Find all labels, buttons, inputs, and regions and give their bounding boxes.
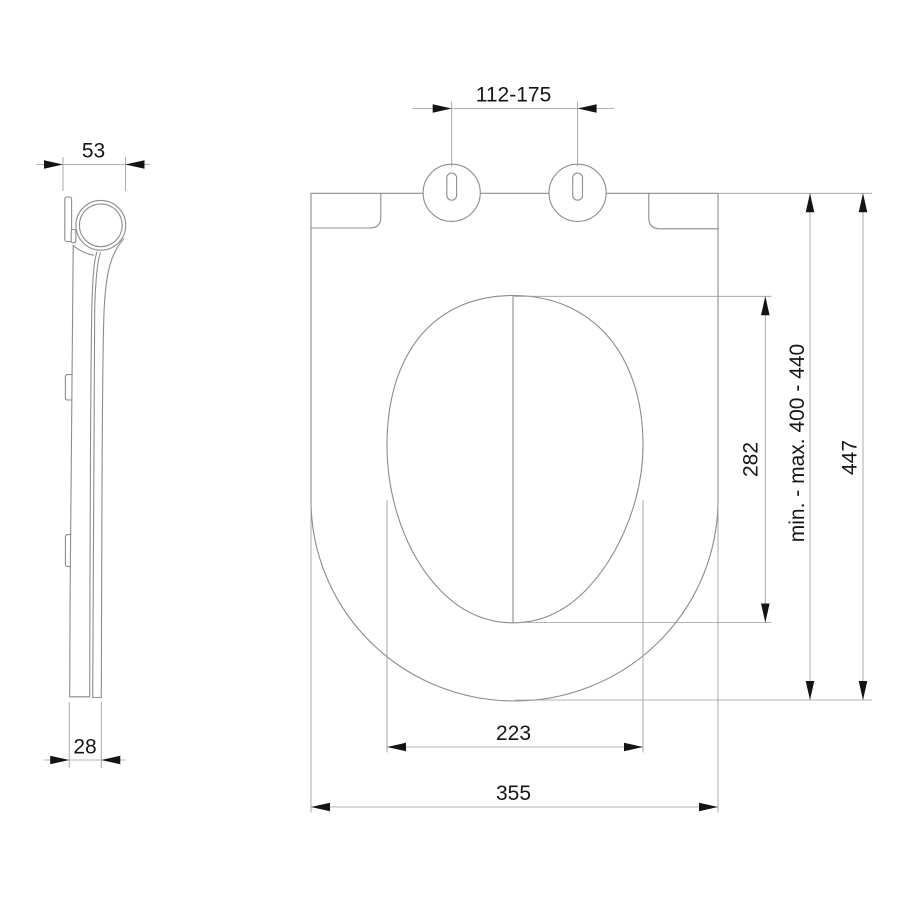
dimension-overall-length: 447 [839,193,868,700]
arrowhead-right-icon [624,743,643,752]
dimension-label: 282 [740,442,763,477]
dimension-top-width: 53 [36,140,150,192]
arrowhead-left-icon [578,104,597,113]
arrowhead-right-icon [699,803,718,812]
arrowhead-left-icon [311,803,330,812]
dimension-label: 355 [496,782,531,805]
arrowhead-left-icon [126,160,145,169]
arrowhead-left-icon [101,756,120,765]
arrowhead-left-icon [387,743,406,752]
dimension-label: 223 [496,722,531,745]
arrowhead-down-icon [806,681,815,700]
arrowhead-right-icon [433,104,452,113]
arrowhead-up-icon [806,193,815,212]
hinge-bracket-foot [71,230,76,243]
drawing-page: 53 28 [0,0,900,900]
hinge-slot-left [447,173,457,200]
lid-front-edge [93,253,101,698]
dimension-label: 447 [839,440,862,475]
dimension-label: min. - max. 400 - 440 [786,344,809,542]
seat-profile [65,197,126,698]
seat-front-edge [70,246,74,697]
technical-drawing: 53 28 [0,0,900,900]
hinge-slot-right [573,173,583,200]
seat-outline [311,193,718,701]
arrowhead-up-icon [859,193,868,212]
bumper-tab [65,375,71,400]
arrowhead-down-icon [859,681,868,700]
dimension-label: 112-175 [476,84,552,107]
arrowhead-down-icon [761,604,770,623]
arrowhead-up-icon [761,296,770,315]
dimension-label: 53 [82,140,105,163]
hinge-bracket [65,197,72,242]
dimension-label: 28 [73,736,96,759]
arrowhead-right-icon [50,756,69,765]
lid-back-edge [101,239,123,698]
side-view: 53 28 [36,140,150,769]
arrowhead-right-icon [44,160,63,169]
dimension-hinge-spacing: 112-175 [412,84,614,167]
hinge-barrel-outer [76,200,126,250]
dimension-bottom-thickness: 28 [44,702,126,768]
top-view: 112-175 282 min. - max. 400 - 440 447 [311,84,872,813]
